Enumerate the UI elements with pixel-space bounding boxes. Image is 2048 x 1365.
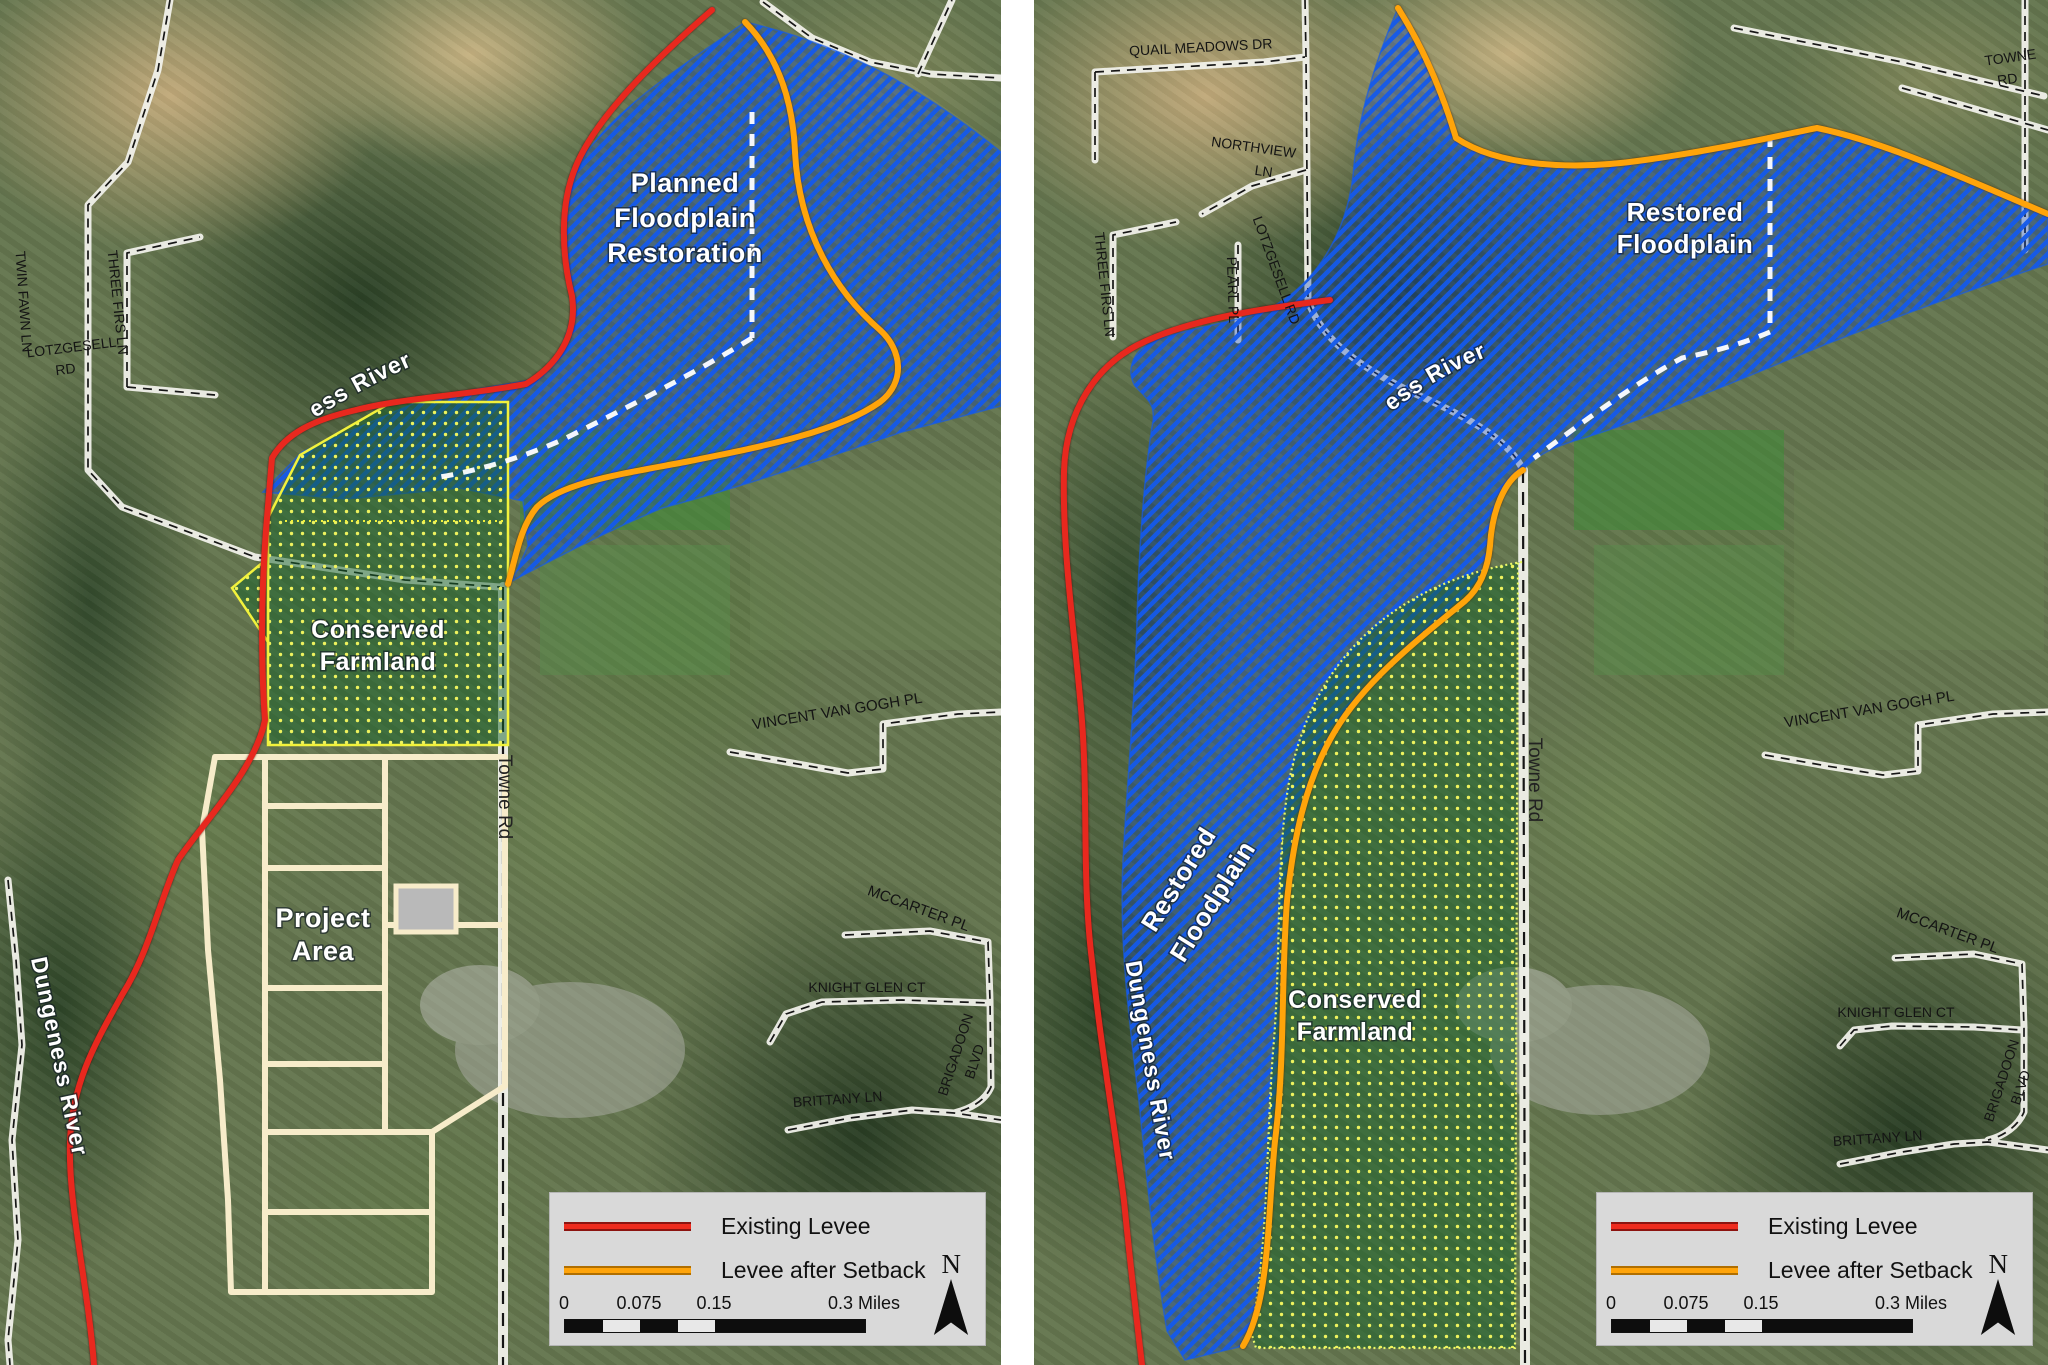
road-quail-meadows-dr — [1095, 57, 1305, 72]
road-three-firs-ln — [1113, 222, 1176, 337]
north-arrow-icon — [929, 1279, 973, 1335]
setback-levee-label: Levee after Setback — [721, 1257, 926, 1284]
scale-tick-3mi: 0.3 Miles — [1875, 1293, 1947, 1314]
existing-levee-symbol — [564, 1222, 691, 1231]
legend: Existing Levee Levee after Setback N 0 0… — [550, 1193, 985, 1345]
label-quail-meadows-dr: QUAIL MEADOWS DR — [1129, 35, 1273, 58]
scale-tick-0: 0 — [559, 1293, 569, 1314]
label-mccarter-pl: MCCARTER PL — [865, 882, 972, 935]
label-towne-rd-corner-line2: RD — [1996, 70, 2018, 89]
road-three-firs-spur — [127, 387, 215, 395]
map-panel-restored: Restored Floodplain Restored Floodplain … — [1034, 0, 2048, 1365]
scale-bar — [1611, 1319, 1913, 1333]
label-project-area-line2: Area — [292, 936, 355, 966]
label-northview-ln-line2: LN — [1254, 162, 1274, 180]
north-label: N — [942, 1249, 962, 1280]
scale-bar — [564, 1319, 866, 1333]
scale-tick-3mi: 0.3 Miles — [828, 1293, 900, 1314]
label-planned-floodplain-line1: Planned — [631, 168, 740, 198]
existing-levee-label: Existing Levee — [1768, 1213, 1918, 1240]
label-northview-ln-line1: NORTHVIEW — [1210, 133, 1297, 161]
label-knight-glen-ct: KNIGHT GLEN CT — [808, 979, 926, 995]
label-planned-floodplain-line2: Floodplain — [614, 203, 755, 233]
setback-levee-label: Levee after Setback — [1768, 1257, 1973, 1284]
label-towne-rd: Towne Rd — [494, 755, 515, 840]
label-restored-floodplain-line2: Floodplain — [1617, 229, 1753, 259]
road-three-firs-ln — [127, 237, 200, 387]
restored-floodplain-area — [1122, 8, 2048, 1360]
label-planned-floodplain-line3: Restoration — [607, 238, 763, 268]
label-conserved-farmland-line2: Farmland — [1297, 1018, 1414, 1046]
label-lotzgesell-rd-line1: LOTZGESELL — [26, 334, 118, 361]
label-project-area-line1: Project — [275, 903, 370, 933]
label-conserved-farmland-line1: Conserved — [311, 616, 445, 644]
legend: Existing Levee Levee after Setback N 0 0… — [1597, 1193, 2032, 1345]
label-dungeness-river-top: Dungeness River — [0, 0, 415, 422]
scale-tick-15: 0.15 — [696, 1293, 731, 1314]
label-dungeness-river-side: Dungeness River — [26, 954, 94, 1158]
north-arrow-icon — [1976, 1279, 2020, 1335]
scale-tick-0: 0 — [1606, 1293, 1616, 1314]
scale-tick-075: 0.075 — [1663, 1293, 1708, 1314]
farm-building — [396, 886, 456, 932]
label-mccarter-pl: MCCARTER PL — [1894, 904, 2001, 957]
label-restored-floodplain-line1: Restored — [1627, 197, 1744, 227]
existing-levee-symbol — [1611, 1222, 1738, 1231]
label-brittany-ln: BRITTANY LN — [1832, 1127, 1923, 1149]
levee-setback-map-comparison: Planned Floodplain Restoration Conserved… — [0, 0, 2048, 1365]
label-twin-fawn-ln: TWIN FAWN LN — [12, 251, 35, 353]
map-panel-planned: Planned Floodplain Restoration Conserved… — [0, 0, 1001, 1365]
road-west-edge — [8, 880, 22, 1365]
setback-levee-symbol — [1611, 1266, 1738, 1275]
north-label: N — [1989, 1249, 2009, 1280]
label-brittany-ln: BRITTANY LN — [792, 1088, 883, 1110]
label-conserved-farmland-line2: Farmland — [320, 648, 437, 676]
label-knight-glen-ct: KNIGHT GLEN CT — [1837, 1004, 1955, 1020]
existing-levee-label: Existing Levee — [721, 1213, 871, 1240]
label-conserved-farmland-line1: Conserved — [1288, 986, 1422, 1014]
label-towne-rd-corner-line1: TOWNE — [1984, 46, 2038, 69]
label-vincent-van-gogh-pl: VINCENT VAN GOGH PL — [751, 690, 924, 734]
label-pearl-pl: PEARL PL — [1224, 256, 1242, 323]
scale-tick-075: 0.075 — [616, 1293, 661, 1314]
scale-tick-15: 0.15 — [1743, 1293, 1778, 1314]
road-brittany-ln — [788, 1110, 1001, 1130]
label-lotzgesell-rd-line2: RD — [54, 360, 76, 378]
setback-levee-symbol — [564, 1266, 691, 1275]
label-towne-rd: Towne Rd — [1524, 738, 1545, 823]
